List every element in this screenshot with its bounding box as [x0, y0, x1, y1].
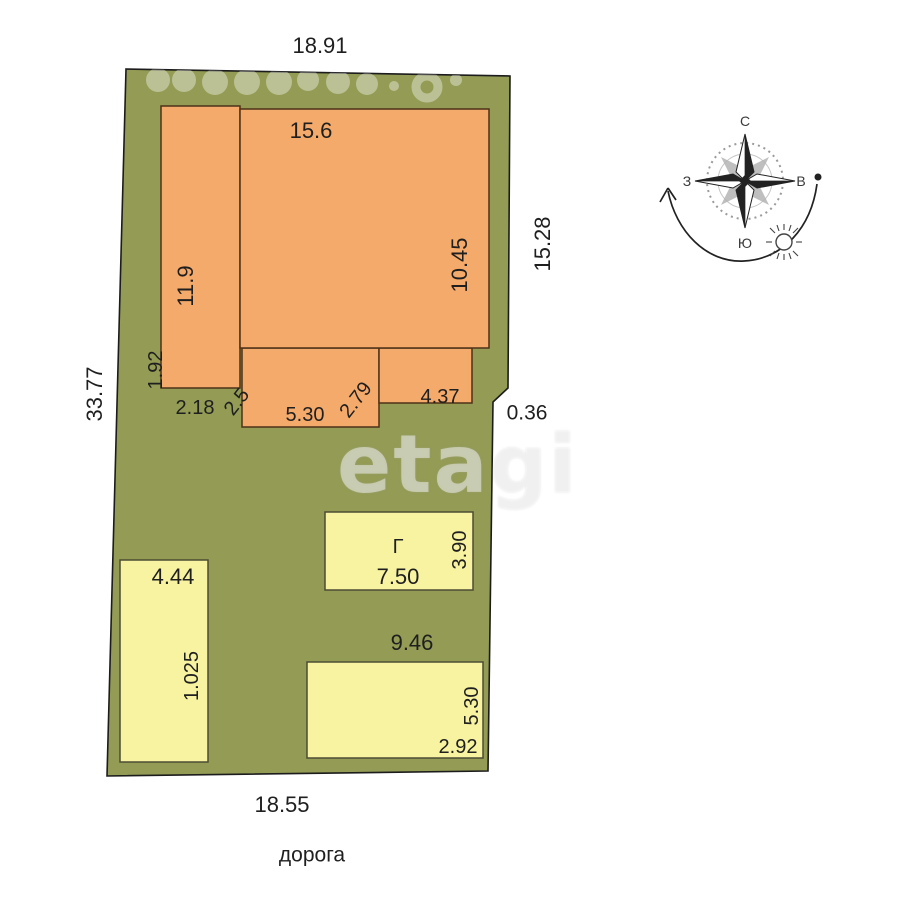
dimension-left-length: 33.77: [84, 366, 106, 421]
sun-path-start-dot: [815, 174, 822, 181]
left-shed-width-label: 4.44: [152, 566, 195, 588]
house-annex-width-label: 4.37: [421, 387, 460, 407]
site-plan-page: С Ю З В etagi 18.9: [0, 0, 900, 900]
garage-height-label: 3.90: [450, 531, 470, 570]
compass-west-label: З: [683, 173, 691, 189]
garage-width-label: 7.50: [377, 566, 420, 588]
dimension-right-notch: 0.36: [507, 403, 548, 424]
compass-east-label: В: [796, 173, 805, 189]
house-left-wing-height-label: 11.9: [175, 265, 197, 306]
left-shed-height-label: 1.025: [182, 651, 202, 701]
house-setback-left-label: 2.18: [176, 398, 215, 418]
house-main-height-label: 10.45: [449, 237, 471, 292]
road-label: дорога: [279, 845, 345, 866]
dimension-bottom-width: 18.55: [254, 794, 309, 816]
house-main-width-label: 15.6: [290, 120, 333, 142]
compass-rose: С Ю З В: [660, 113, 822, 261]
house-main: [240, 109, 489, 348]
sun-icon: [766, 224, 802, 260]
dimension-right-length: 15.28: [532, 216, 554, 271]
bottom-shed-offset-label: 2.92: [439, 737, 478, 757]
house-left-wing: [161, 106, 240, 388]
bottom-shed-width-label: 9.46: [391, 632, 434, 654]
bottom-shed-height-label: 5.30: [462, 687, 482, 726]
watermark-text: etagi: [337, 418, 578, 511]
house-porch-width-label: 5.30: [286, 405, 325, 425]
house-left-wing-bottom-label: 1.92: [146, 351, 166, 390]
dimension-top-width: 18.91: [292, 35, 347, 57]
garage-letter-label: Г: [393, 537, 404, 557]
compass-north-label: С: [740, 113, 750, 129]
compass-south-label: Ю: [738, 235, 752, 251]
